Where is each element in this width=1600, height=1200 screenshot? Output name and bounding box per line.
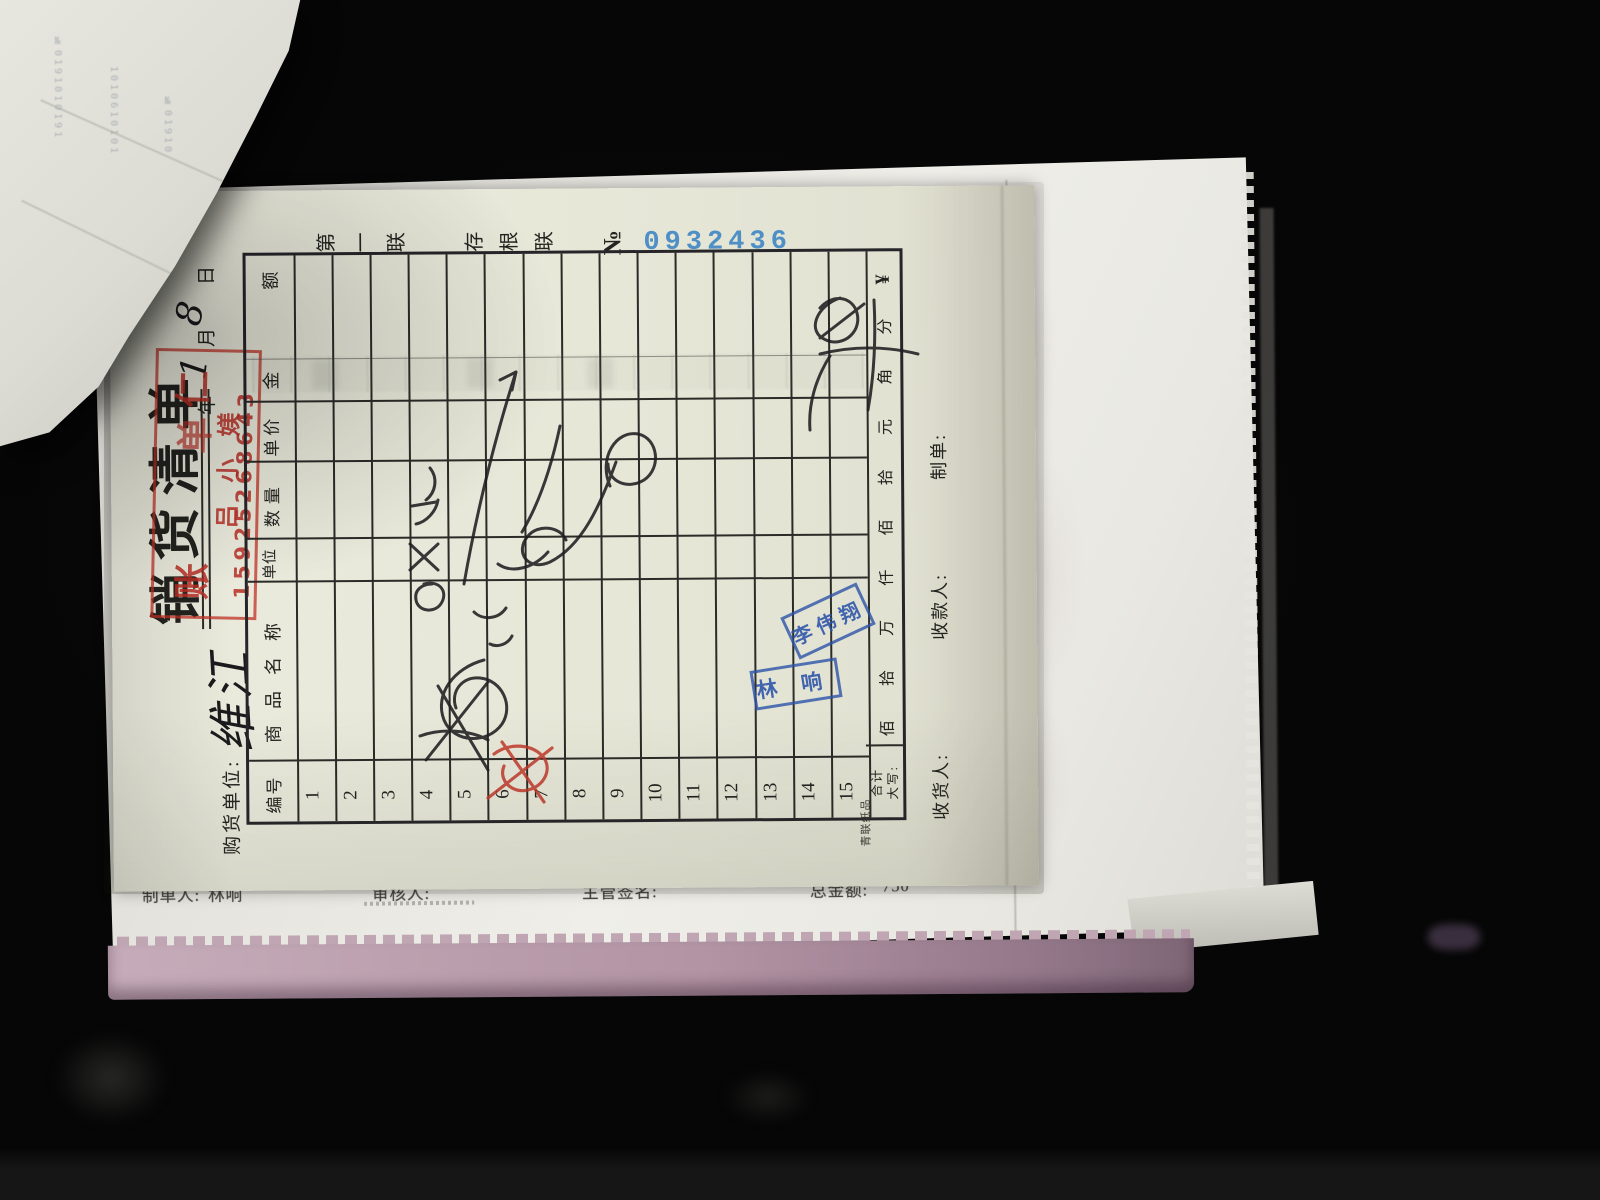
row-number: 15 <box>828 762 866 820</box>
row-number: 7 <box>523 765 561 823</box>
micro-print <box>364 900 474 905</box>
row-number: 10 <box>637 764 675 822</box>
serial-number: 0932436 <box>643 227 792 258</box>
amount-unit: 仟 <box>873 570 897 586</box>
row-number: 9 <box>599 764 637 822</box>
amount-unit: 拾 <box>872 469 896 485</box>
row-number: 8 <box>561 764 599 822</box>
row-number: 5 <box>446 765 484 823</box>
header-amount-char: 额 <box>257 272 283 290</box>
grid-line <box>247 533 867 539</box>
row-number: 6 <box>484 765 522 823</box>
header-qty: 数量 <box>258 466 284 543</box>
cashier-label: 收款人: <box>926 573 952 640</box>
year-label: 年 <box>192 396 219 415</box>
amount-unit: 元 <box>872 419 896 435</box>
background-smudge <box>1428 924 1480 950</box>
grid-line <box>332 255 338 821</box>
grid-line <box>713 253 719 819</box>
header-no: 编号 <box>260 765 285 825</box>
red-stamp-char: 仁 <box>163 370 218 408</box>
red-stamp-char: 账 <box>162 562 217 600</box>
bleed-through-text: №0191010191 <box>52 36 63 356</box>
header-amount: 金 额 <box>257 256 284 406</box>
maker-label: 制单: <box>925 433 951 480</box>
copy-label: 第一联 <box>315 230 420 260</box>
total-label-line2: 大写: <box>886 765 900 800</box>
day-value-handwriting: 8 <box>168 298 213 330</box>
bleed-through-line <box>41 99 270 202</box>
row-number: 14 <box>790 763 828 821</box>
red-stamp-phone: 15925268643 <box>230 388 258 599</box>
grid-line <box>866 744 906 746</box>
row-number: 2 <box>332 766 370 824</box>
items-table <box>242 248 906 825</box>
stub-label: 存根联 <box>463 229 568 259</box>
header-amount-char: 金 <box>257 372 283 390</box>
day-label: 日 <box>192 266 219 285</box>
header-name: 商品名称 <box>259 586 286 765</box>
currency-symbol: ¥ <box>871 274 894 284</box>
red-stamp: 账 单 仁 吕小媄 15925268643 <box>150 348 262 620</box>
total-label-line1: 合计 <box>870 768 884 797</box>
amount-unit: 万 <box>873 620 897 636</box>
red-stamp-name: 吕小媄 <box>207 390 245 529</box>
grid-line <box>828 252 834 818</box>
receiver-label: 收货人: <box>927 753 953 820</box>
red-stamp-char: 单 <box>165 416 220 454</box>
serial-strip: 第一联 存根联 № 0932436 <box>315 227 855 261</box>
grid-line <box>247 396 867 402</box>
grid-line <box>248 576 868 582</box>
amount-unit: 分 <box>871 318 895 334</box>
grid-line <box>790 252 796 818</box>
grid-line <box>247 456 867 462</box>
grid-line <box>370 255 376 821</box>
amount-unit-row: 佰 拾 万 仟 佰 拾 元 角 分 ¥ <box>863 274 906 736</box>
month-label: 月 <box>192 328 219 347</box>
header-unit: 单位 <box>259 543 280 586</box>
printer-mark: 青联纸品 <box>857 798 873 846</box>
amount-unit: 佰 <box>872 519 896 535</box>
title-underline <box>200 389 211 629</box>
amount-unit: 佰 <box>874 720 898 736</box>
buyer-value-handwriting: 维江 <box>190 647 266 755</box>
grid-line <box>599 253 605 819</box>
row-number: 11 <box>675 764 713 822</box>
numero-symbol: № <box>599 229 626 257</box>
grid-line <box>752 252 758 818</box>
row-number: 1 <box>294 766 332 824</box>
grid-line <box>249 755 869 761</box>
row-number: 12 <box>713 763 751 821</box>
row-number: 13 <box>752 763 790 821</box>
grid-line <box>408 255 414 821</box>
photo-of-receipt: 制单人: 林响 审核人: 主管签名: 总金额: 750 第一联 存根联 № 09… <box>0 0 1600 1200</box>
grid-line <box>523 254 529 820</box>
carbon-ghost-band <box>252 352 864 392</box>
receipt-title: 销货清单 <box>132 365 209 626</box>
row-number: 4 <box>408 765 446 823</box>
grid-line <box>866 251 872 817</box>
month-value-handwriting: 1 <box>173 354 217 382</box>
amount-unit: 角 <box>871 369 895 385</box>
grid-line <box>294 255 300 821</box>
background-smudge <box>36 1018 186 1138</box>
background-smudge <box>708 1062 828 1132</box>
grid-line <box>446 254 452 820</box>
carbon-smudge <box>587 358 613 388</box>
carbon-smudge <box>467 358 493 388</box>
grid-line <box>675 253 681 819</box>
buyer-label: 购货单位: <box>217 759 245 855</box>
pink-sheet <box>108 938 1194 1000</box>
receipt-form: 第一联 存根联 № 0932436 销货清单 购货单位: 维江 年 月 日 1 … <box>109 185 1039 891</box>
grid-line <box>561 254 567 820</box>
grid-line <box>637 253 643 819</box>
paper-crease <box>1001 185 1008 885</box>
sheet-edge <box>1260 208 1279 908</box>
amount-unit: 拾 <box>873 670 897 686</box>
grid-line <box>484 254 490 820</box>
total-label: 合计 大写: <box>869 746 902 818</box>
grid-line <box>246 354 866 359</box>
carbon-smudge <box>312 360 338 390</box>
background-band <box>0 1148 1600 1200</box>
row-number: 3 <box>370 766 408 824</box>
header-price: 单价 <box>258 406 283 466</box>
